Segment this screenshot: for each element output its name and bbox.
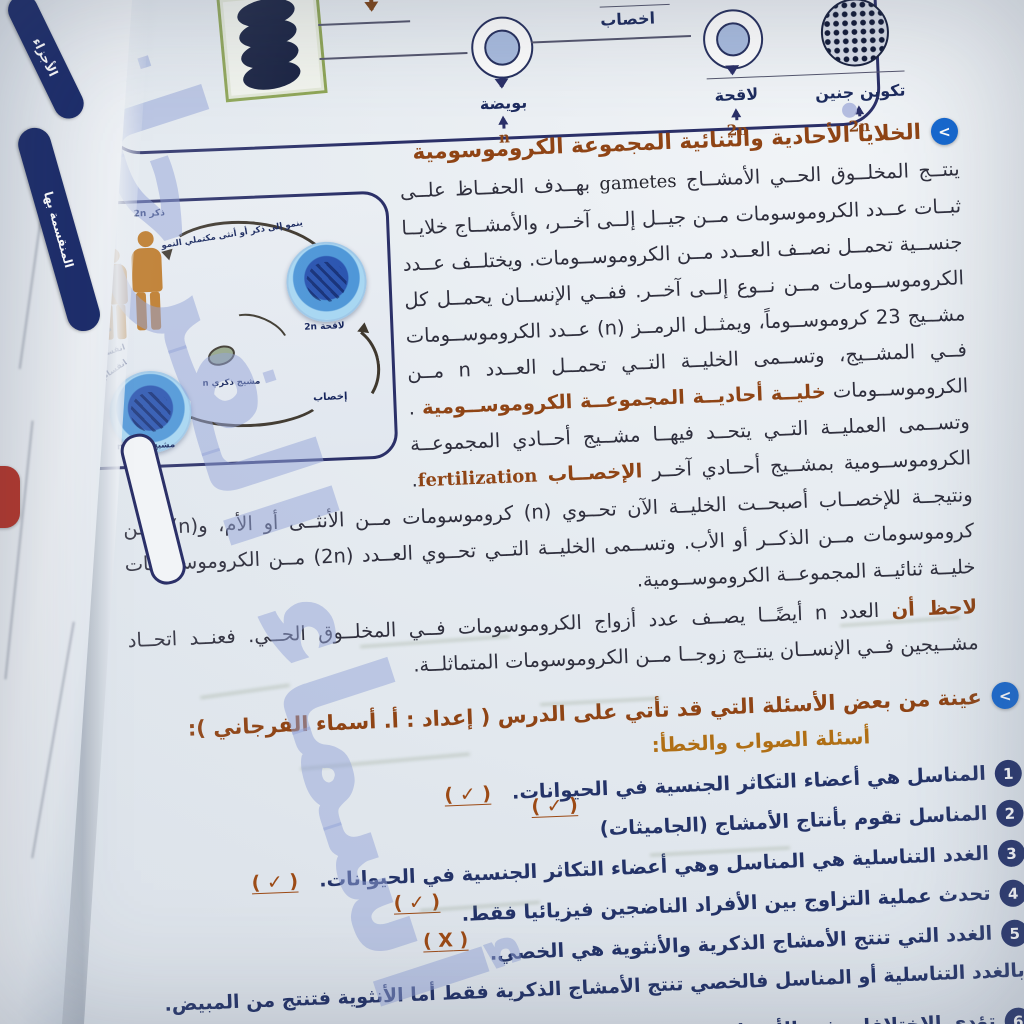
watermark-dot xyxy=(842,102,858,118)
down-arrow-icon xyxy=(730,65,734,73)
egg-nucleus xyxy=(484,29,521,66)
answer-mark: ( ✓ ) xyxy=(251,861,299,903)
question-number-badge: 4 xyxy=(999,879,1024,907)
question-number-badge: 6 xyxy=(1004,1007,1024,1024)
zygote-cell xyxy=(285,240,368,323)
book-right-page: بويضة n اخصاب لاقحة 2n تكوين جنين 2n < xyxy=(59,0,1024,1024)
down-arrow-icon xyxy=(368,0,374,10)
question-number-badge: 5 xyxy=(1001,919,1024,947)
up-arrow-icon xyxy=(858,108,861,116)
zygote-cell xyxy=(702,8,764,70)
connector-line xyxy=(600,4,670,8)
fertilization-label: اخصاب xyxy=(600,8,656,29)
connector-line xyxy=(318,20,410,26)
connector-line xyxy=(320,52,468,60)
gamete-union-arc xyxy=(170,362,328,430)
arrowhead-icon xyxy=(357,316,371,333)
textbook-photo: بويضة n اخصاب لاقحة 2n تكوين جنين 2n < xyxy=(0,0,1024,1024)
answer-mark: ( X ) xyxy=(422,920,469,962)
male-label: ذكر 2n xyxy=(133,208,165,219)
up-arrow-icon xyxy=(502,119,505,129)
sperm-cells-box xyxy=(216,0,327,102)
questions-heading: < عينة من بعض الأسئلة التي قد تأتي على ا… xyxy=(131,681,1019,744)
chevron-left-bullet-icon: < xyxy=(930,117,958,145)
connector-line xyxy=(531,35,691,43)
red-side-tab xyxy=(0,466,20,528)
down-arrow-icon xyxy=(499,77,503,87)
question-number-badge: 1 xyxy=(994,759,1022,787)
question-number-badge: 3 xyxy=(997,839,1024,867)
egg-cell xyxy=(470,15,534,79)
page-content: < الخلايا الأحادية والثنائية المجموعة ال… xyxy=(108,117,998,1024)
question-number-badge: 2 xyxy=(996,799,1024,827)
embryo-morula xyxy=(820,0,891,68)
chevron-left-bullet-icon: < xyxy=(991,681,1019,709)
true-false-question-list: 1 المناسل هي أعضاء التكاثر الجنسية في ال… xyxy=(134,752,1024,1024)
up-arrow-icon xyxy=(735,111,738,120)
answer-mark: ( ✓ ) xyxy=(393,882,441,924)
questions-section: < عينة من بعض الأسئلة التي قد تأتي على ا… xyxy=(131,681,1024,1024)
zygote-nucleus xyxy=(715,21,751,57)
answer-mark: ( ✓ ) xyxy=(531,785,579,827)
answer-mark: ( ✓ ) xyxy=(444,774,492,816)
